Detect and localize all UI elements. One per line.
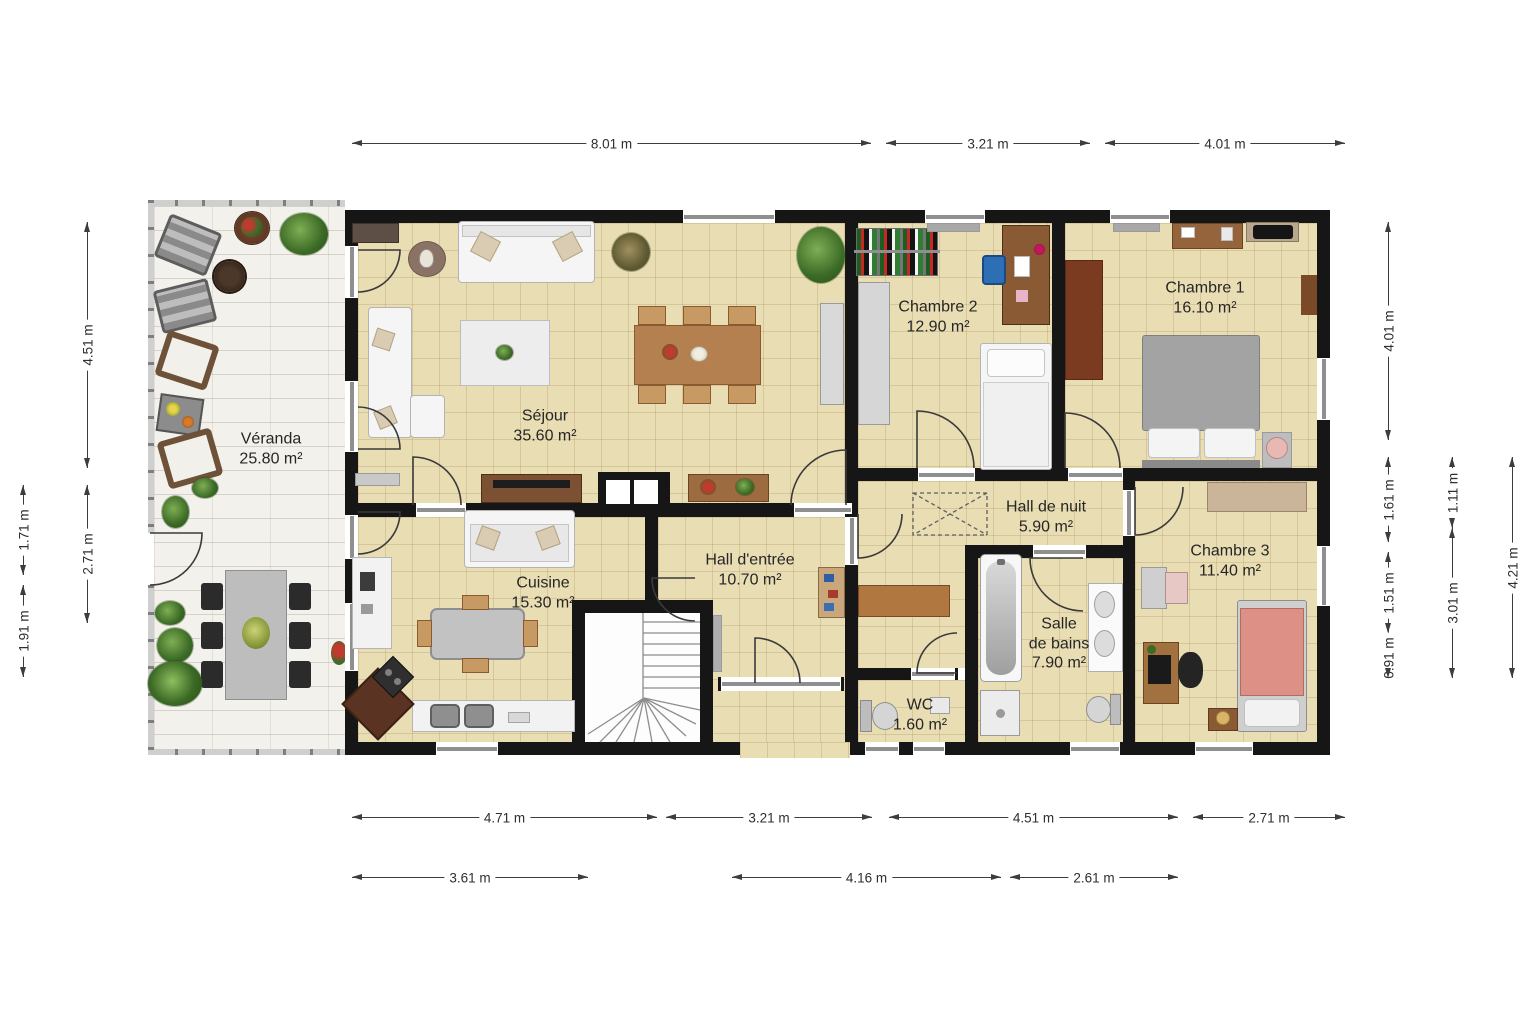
dim-label: 4.71 m: [479, 811, 530, 826]
front-door-sill: [718, 677, 844, 691]
wall-chambre2-chambre1: [1052, 223, 1065, 468]
vanity-basin: [1094, 591, 1115, 618]
flower-pot-blossoms: [241, 217, 263, 237]
floorplan-canvas: Véranda 25.80 m² Séjour 35.60 m² Cuisine…: [0, 0, 1536, 1021]
dim-label: 4.01 m: [1382, 305, 1397, 356]
wall-sejour-south-c: [670, 503, 791, 517]
wardrobe: [858, 282, 890, 425]
room-name: Hall de nuit: [1006, 497, 1086, 517]
dining-chair: [683, 306, 711, 325]
window: [433, 742, 501, 755]
room-label-chambre1: Chambre 1 16.10 m²: [1165, 278, 1244, 317]
dim-label: 1.71 m: [17, 504, 32, 555]
dim-bottom-4: 2.71 m: [1193, 817, 1345, 818]
bathtub-basin: [986, 561, 1016, 675]
kitchen-chair: [523, 620, 538, 647]
dim-label: 4.51 m: [81, 319, 96, 370]
door-sill: [413, 503, 469, 517]
veranda-glass-wall-left-upper: [148, 200, 154, 533]
dim-right-2: 1.61 m: [1388, 457, 1389, 542]
veranda-glass-wall-top: [148, 200, 345, 206]
small-plant: [157, 628, 193, 663]
radiator: [355, 473, 400, 486]
dim-label: 4.51 m: [1008, 811, 1059, 826]
shower-drain: [996, 709, 1005, 718]
dim-bottom-7: 2.61 m: [1010, 877, 1178, 878]
wall-chambres-south-c: [1120, 468, 1330, 481]
console-flowers: [700, 479, 716, 495]
hallway-bench: [858, 585, 950, 617]
dim-label: 3.21 m: [962, 137, 1013, 152]
kitchen-table: [430, 608, 525, 660]
dining-chair: [728, 306, 756, 325]
dim-right-6: 3.01 m: [1452, 528, 1453, 678]
room-label-wc: WC 1.60 m²: [893, 695, 947, 734]
shoes-red: [828, 590, 838, 598]
room-area: 12.90 m²: [898, 317, 977, 337]
room-label-chambre2: Chambre 2 12.90 m²: [898, 297, 977, 336]
wall-chambre3-west: [1123, 533, 1135, 742]
dim-label: 3.21 m: [743, 811, 794, 826]
dim-top-1: 8.01 m: [352, 143, 871, 144]
bed-pillow: [1148, 428, 1200, 458]
dim-label: 4.16 m: [841, 871, 892, 886]
room-area: 1.60 m²: [893, 715, 947, 735]
bed-pillow: [1244, 699, 1300, 727]
window: [1317, 543, 1330, 609]
room-name: Hall d'entrée: [705, 550, 794, 570]
room-name: Chambre 1: [1165, 278, 1244, 298]
dim-top-3: 4.01 m: [1105, 143, 1345, 144]
window: [1192, 742, 1256, 755]
dim-right-7: 4.21 m: [1512, 457, 1513, 678]
table-centerpiece-plant: [242, 617, 270, 649]
nightstand-lamp: [1266, 437, 1288, 459]
room-name: Chambre 2: [898, 297, 977, 317]
dim-right-1: 4.01 m: [1388, 222, 1389, 440]
window: [1317, 355, 1330, 423]
desk-chair-black: [1178, 652, 1203, 688]
wall-wc-north: [858, 668, 908, 680]
door-sill: [1030, 545, 1089, 558]
dim-label: 8.01 m: [586, 137, 637, 152]
table-plant: [496, 345, 513, 360]
bathtub-faucet: [997, 559, 1005, 565]
veranda-bush: [280, 213, 328, 255]
dim-label: 0.91 m: [1382, 632, 1397, 683]
kitchen-chair: [462, 658, 489, 673]
dining-chair-black: [201, 661, 223, 688]
room-label-hall-entree: Hall d'entrée 10.70 m²: [705, 550, 794, 589]
shoes-blue: [824, 574, 834, 582]
room-area: 7.90 m²: [1029, 654, 1090, 674]
dim-right-3: 1.51 m: [1388, 552, 1389, 633]
bath-toilet-bowl: [1086, 696, 1111, 723]
dim-bottom-1: 4.71 m: [352, 817, 657, 818]
room-name: WC: [893, 695, 947, 715]
window: [345, 243, 358, 301]
room-area: 11.40 m²: [1190, 561, 1269, 581]
nightstand-lamp: [1216, 711, 1230, 725]
door-sill: [1065, 468, 1126, 481]
door-sill: [1123, 487, 1135, 539]
window: [862, 742, 902, 755]
rug-brown: [1065, 260, 1103, 380]
desk-plant: [1147, 645, 1156, 654]
room-area: 16.10 m²: [1165, 298, 1244, 318]
dim-label: 3.01 m: [1446, 577, 1461, 628]
desk-paper: [1181, 227, 1195, 238]
entrance-porch-floor: [740, 742, 850, 758]
corner-sofa-foot: [410, 395, 445, 438]
window: [1067, 742, 1123, 755]
cutting-board: [508, 712, 530, 723]
dining-chair-black: [289, 622, 311, 649]
door-sill: [915, 468, 978, 481]
room-name: Véranda: [239, 429, 302, 449]
kitchen-chair: [417, 620, 432, 647]
dim-label: 1.61 m: [1382, 474, 1397, 525]
radiator: [1113, 223, 1160, 232]
dining-chair-black: [201, 622, 223, 649]
bed-blanket: [983, 382, 1049, 467]
small-plant: [192, 478, 218, 498]
kitchen-counter-left: [352, 557, 392, 649]
dim-left-2: 2.71 m: [87, 485, 88, 623]
tv-cabinet: [481, 474, 582, 503]
side-table: [1141, 567, 1167, 609]
wall-hall-corridor: [845, 562, 858, 742]
room-label-veranda: Véranda 25.80 m²: [239, 429, 302, 468]
wall-east: [1317, 210, 1330, 755]
kitchen-sink: [430, 704, 460, 728]
fruit-bowl: [690, 346, 708, 362]
vanity-basin: [1094, 630, 1115, 657]
table-flower-yellow: [166, 402, 180, 416]
room-area: 25.80 m²: [239, 449, 302, 469]
room-area: 5.90 m²: [1006, 517, 1086, 537]
room-area: 15.30 m²: [511, 593, 574, 613]
dim-right-5: 1.11 m: [1452, 457, 1453, 528]
keyboard-black: [1253, 225, 1293, 239]
large-plant: [797, 227, 845, 283]
door-opening: [345, 512, 358, 562]
dim-label: 3.61 m: [444, 871, 495, 886]
dining-chair: [683, 385, 711, 404]
dim-right-4: 0.91 m: [1388, 638, 1389, 678]
room-name: Chambre 3: [1190, 541, 1269, 561]
counter-appliance: [360, 572, 375, 591]
dim-left-4: 1.91 m: [23, 585, 24, 677]
room-area: 10.70 m²: [705, 570, 794, 590]
pillar-white: [634, 480, 658, 504]
sideboard: [820, 303, 844, 405]
small-plant: [155, 601, 185, 625]
dining-chair-black: [289, 661, 311, 688]
window: [680, 210, 778, 223]
fireplace: [352, 223, 399, 243]
room-name: Cuisine: [511, 573, 574, 593]
double-bed-blanket: [1142, 335, 1260, 431]
kitchen-sink: [464, 704, 494, 728]
wall-bath-west: [965, 545, 978, 742]
window: [922, 210, 988, 223]
door-sill: [908, 668, 958, 680]
dim-label: 2.71 m: [81, 528, 96, 579]
room-label-chambre3: Chambre 3 11.40 m²: [1190, 541, 1269, 580]
cooktop-burner: [394, 678, 401, 685]
wall-shelf: [1301, 275, 1317, 315]
door-sill: [845, 514, 858, 568]
room-name: Salle de bains: [1029, 615, 1090, 654]
wall-cuisine-hall: [645, 517, 658, 613]
dim-label: 2.71 m: [1243, 811, 1294, 826]
dim-left-3: 1.71 m: [23, 485, 24, 575]
wall-bottom-left: [345, 742, 740, 755]
dim-left-1: 4.51 m: [87, 222, 88, 468]
pillar-white: [606, 480, 630, 504]
table-flower-orange: [182, 416, 194, 428]
dim-bottom-2: 3.21 m: [666, 817, 872, 818]
room-label-hall-de-nuit: Hall de nuit 5.90 m²: [1006, 497, 1086, 536]
armchair-pink: [1165, 572, 1188, 604]
dry-plant: [612, 233, 650, 271]
vase: [419, 249, 434, 268]
dim-bottom-6: 4.16 m: [732, 877, 1001, 878]
room-label-sejour: Séjour 35.60 m²: [513, 406, 576, 445]
laptop: [1148, 655, 1171, 684]
dim-bottom-5: 3.61 m: [352, 877, 588, 878]
room-name: Séjour: [513, 406, 576, 426]
desk-paper: [1221, 227, 1233, 241]
window: [910, 742, 948, 755]
cooktop-burner: [385, 669, 392, 676]
rose: [1034, 244, 1045, 255]
wall-chambres-south-a: [858, 468, 915, 481]
palm-plant: [148, 661, 202, 706]
dim-label: 2.61 m: [1068, 871, 1119, 886]
wardrobe: [1207, 482, 1307, 512]
dim-bottom-3: 4.51 m: [889, 817, 1178, 818]
radiator: [713, 615, 722, 672]
dining-chair: [638, 306, 666, 325]
bed-blanket-pink: [1240, 608, 1304, 696]
bath-toilet-tank: [1110, 694, 1121, 725]
dining-chair-black: [201, 583, 223, 610]
veranda-glass-wall-bottom: [148, 749, 345, 755]
room-label-salle-de-bains: Salle de bains 7.90 m²: [1029, 615, 1090, 674]
dining-chair-black: [289, 583, 311, 610]
dim-top-2: 3.21 m: [886, 143, 1090, 144]
room-label-cuisine: Cuisine 15.30 m²: [511, 573, 574, 612]
counter-item: [361, 604, 373, 614]
tv: [493, 480, 570, 488]
clothes-rack-rail: [854, 250, 940, 253]
bed-pillow: [987, 349, 1045, 377]
bed-pillow: [1204, 428, 1256, 458]
console-plant: [736, 479, 754, 495]
dim-label: 1.91 m: [17, 605, 32, 656]
dim-label: 1.11 m: [1446, 467, 1461, 517]
kitchen-chair: [462, 595, 489, 610]
desk-paper: [1014, 256, 1030, 277]
window: [345, 378, 358, 455]
dining-chair: [638, 385, 666, 404]
radiator: [927, 223, 980, 232]
small-plant: [162, 496, 189, 528]
dim-label: 1.51 m: [1382, 567, 1397, 618]
wc-toilet-tank: [860, 700, 872, 732]
shoes-blue: [824, 603, 834, 611]
flower-centerpiece: [662, 344, 678, 360]
round-side-table: [214, 261, 245, 292]
room-area: 35.60 m²: [513, 426, 576, 446]
window: [1107, 210, 1173, 223]
bed-headboard: [1142, 460, 1260, 468]
wall-sejour-south-a: [358, 503, 413, 517]
dim-label: 4.21 m: [1506, 542, 1521, 593]
dim-label: 4.01 m: [1199, 137, 1250, 152]
desk-note-pink: [1016, 290, 1028, 302]
dining-chair: [728, 385, 756, 404]
desk-chair-blue: [982, 255, 1006, 285]
stairwell-interior: [585, 613, 700, 742]
